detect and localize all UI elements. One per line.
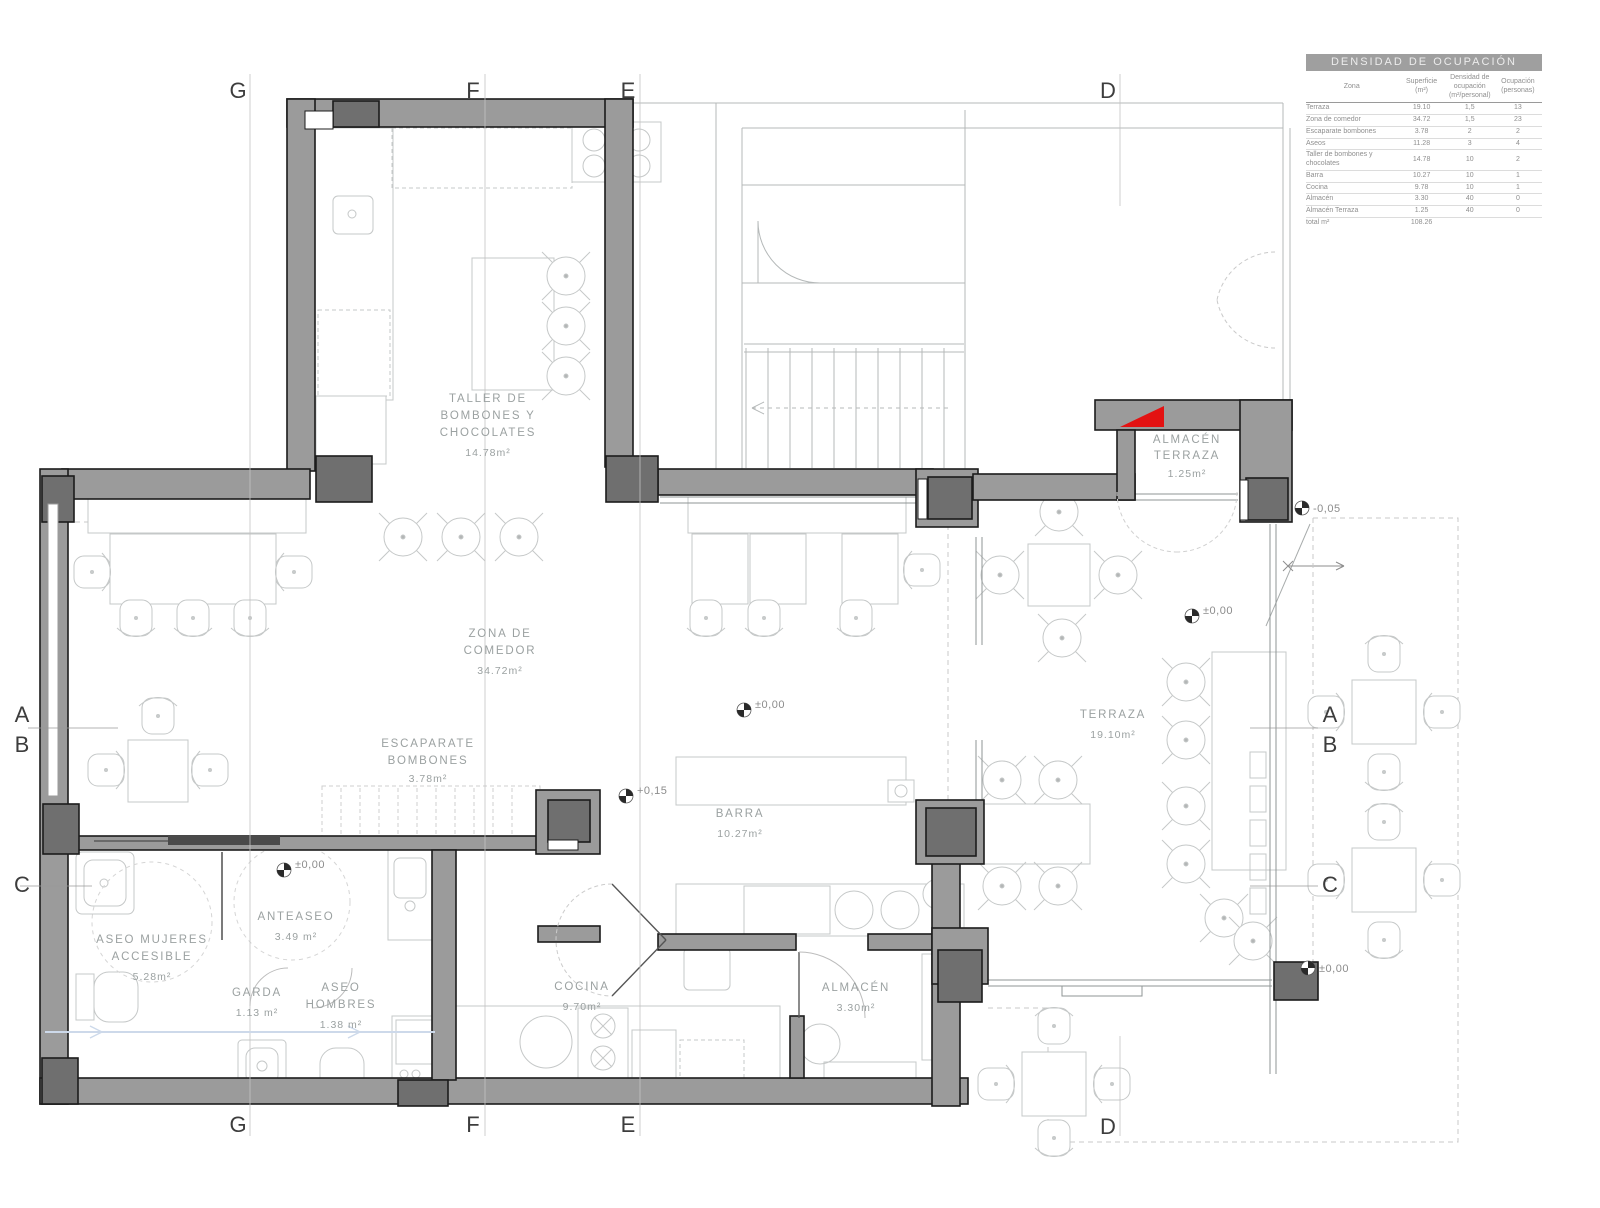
grid-letter-c-left: C [14,872,30,897]
occupancy-cell: 1 [1494,182,1542,194]
svg-text:3.30m²: 3.30m² [837,1002,876,1014]
furniture [74,122,1460,1157]
svg-text:TERRAZA: TERRAZA [1154,450,1220,462]
svg-text:14.78m²: 14.78m² [465,447,511,459]
occupancy-cell: Barra [1306,170,1398,182]
svg-text:10.27m²: 10.27m² [717,828,763,840]
occupancy-cell: Taller de bombones y chocolates [1306,150,1398,171]
svg-text:BARRA: BARRA [716,808,765,820]
svg-text:34.72m²: 34.72m² [477,665,523,677]
room-label-terraza: TERRAZA 19.10m² [1080,709,1146,741]
room-label-taller: TALLER DE BOMBONES Y CHOCOLATES 14.78m² [440,393,536,459]
occupancy-row: Zona de comedor34.721,523 [1306,115,1542,127]
occupancy-cell: 13 [1494,103,1542,115]
room-label-garda: GARDA 1.13 m² [232,987,282,1019]
svg-text:TALLER DE: TALLER DE [449,393,527,405]
svg-text:3.49 m²: 3.49 m² [275,931,318,943]
svg-text:COCINA: COCINA [554,981,610,993]
room-label-anteaseo: ANTEASEO 3.49 m² [257,911,334,943]
grid-letter-c-right: C [1322,872,1338,897]
occupancy-cell: Escaparate bombones [1306,126,1398,138]
occupancy-cell: 10 [1446,182,1494,194]
occupancy-cell: 3.78 [1398,126,1446,138]
terraza-furniture [976,488,1286,965]
occupancy-row: Cocina9.78101 [1306,182,1542,194]
bathroom-fixtures [76,844,438,1098]
occupancy-cell: Almacén [1306,194,1398,206]
occupancy-row: Almacén3.30400 [1306,194,1542,206]
svg-text:ALMACÉN: ALMACÉN [1153,433,1221,446]
room-label-barra: BARRA 10.27m² [716,808,765,840]
level-aseos: ±0,00 [295,859,325,871]
grid-letter-b-left: B [15,732,30,757]
occupancy-cell: 10 [1446,170,1494,182]
almacen-furniture [800,954,952,1078]
occupancy-cell: 19.10 [1398,103,1446,115]
occupancy-cell: 1 [1494,170,1542,182]
occupancy-total-superficie: 108.26 [1398,217,1446,228]
occupancy-cell: Terraza [1306,103,1398,115]
annotation-guideline [45,1026,435,1038]
grid-letter-f-top: F [466,78,479,103]
svg-text:5.28m²: 5.28m² [133,971,172,983]
svg-text:9.70m²: 9.70m² [563,1001,602,1013]
occupancy-row: Terraza19.101,513 [1306,103,1542,115]
occupancy-row: Escaparate bombones3.7822 [1306,126,1542,138]
occupancy-cell: Almacén Terraza [1306,206,1398,218]
svg-text:ZONA DE: ZONA DE [468,628,531,640]
occupancy-table: DENSIDAD DE OCUPACIÓN Zona Superficie (m… [1306,54,1542,229]
svg-text:ASEO: ASEO [321,982,360,994]
occupancy-row: Almacén Terraza1.25400 [1306,206,1542,218]
svg-text:CHOCOLATES: CHOCOLATES [440,427,536,439]
occupancy-cell: 34.72 [1398,115,1446,127]
level-terraza: ±0,00 [1203,605,1233,617]
occupancy-row: Taller de bombones y chocolates14.78102 [1306,150,1542,171]
occupancy-cell: 0 [1494,194,1542,206]
grid-lines [20,74,1318,1136]
occupancy-header-densidad: Densidad de ocupación (m²/personal) [1446,73,1494,103]
occupancy-cell: 11.28 [1398,138,1446,150]
occupancy-total-label: total m² [1306,217,1398,228]
escaparate-display [322,786,540,836]
occupancy-cell: 2 [1494,150,1542,171]
occupancy-total-row: total m² 108.26 [1306,217,1542,228]
level-comedor: ±0,00 [755,699,785,711]
occupancy-cell: 1,5 [1446,115,1494,127]
grid-letter-b-right: B [1323,732,1338,757]
level-exterior-se: ±0,00 [1319,963,1349,975]
svg-text:1.38 m²: 1.38 m² [320,1019,363,1031]
occupancy-cell: 2 [1446,126,1494,138]
svg-text:TERRAZA: TERRAZA [1080,709,1146,721]
occupancy-cell: 9.78 [1398,182,1446,194]
occupancy-header-ocupacion: Ocupación (personas) [1494,73,1542,103]
svg-text:3.78m²: 3.78m² [409,773,448,785]
occupancy-cell: Zona de comedor [1306,115,1398,127]
occupancy-header-superficie: Superficie (m²) [1398,73,1446,103]
svg-text:HOMBRES: HOMBRES [306,999,377,1011]
grid-letter-g-top: G [229,78,246,103]
floor-plan-page: G F E D G F E D A B C A B C ±0,00 +0,15 … [0,0,1600,1208]
svg-text:19.10m²: 19.10m² [1090,729,1136,741]
occupancy-cell: 2 [1494,126,1542,138]
grid-letter-e-bottom: E [621,1112,636,1137]
svg-text:ACCESIBLE: ACCESIBLE [112,951,193,963]
occupancy-cell: 3.30 [1398,194,1446,206]
room-label-escaparate: ESCAPARATE BOMBONES 3.78m² [381,738,475,785]
svg-text:GARDA: GARDA [232,987,282,999]
room-label-almacen-terraza: ALMACÉN TERRAZA 1.25m² [1153,433,1221,480]
svg-text:ANTEASEO: ANTEASEO [257,911,334,923]
level-exterior-ne: -0,05 [1313,503,1341,515]
occupancy-cell: 0 [1494,206,1542,218]
svg-text:1.25m²: 1.25m² [1168,468,1207,480]
occupancy-table-title: DENSIDAD DE OCUPACIÓN [1306,54,1542,71]
occupancy-cell: Aseos [1306,138,1398,150]
room-label-almacen: ALMACÉN 3.30m² [822,981,890,1014]
occupancy-cell: 3 [1446,138,1494,150]
occupancy-row: Barra10.27101 [1306,170,1542,182]
occupancy-cell: 10.27 [1398,170,1446,182]
cocina-furniture [456,948,780,1078]
occupancy-header-row: Zona Superficie (m²) Densidad de ocupaci… [1306,73,1542,103]
grid-letter-a-left: A [15,702,30,727]
svg-text:COMEDOR: COMEDOR [464,645,537,657]
svg-text:BOMBONES Y: BOMBONES Y [440,410,535,422]
occupancy-cell: Cocina [1306,182,1398,194]
grid-letter-g-bottom: G [229,1112,246,1137]
occupancy-cell: 10 [1446,150,1494,171]
grid-letter-a-right: A [1323,702,1338,727]
room-label-aseo-hombres: ASEO HOMBRES 1.38 m² [306,982,377,1031]
occupancy-cell: 1.25 [1398,206,1446,218]
level-barra: +0,15 [637,785,667,797]
grid-letter-f-bottom: F [466,1112,479,1137]
grid-letter-d-bottom: D [1100,1114,1116,1139]
occupancy-cell: 40 [1446,206,1494,218]
occupancy-cell: 4 [1494,138,1542,150]
occupancy-cell: 14.78 [1398,150,1446,171]
svg-text:1.13 m²: 1.13 m² [236,1007,279,1019]
grid-letter-e-top: E [621,78,636,103]
svg-text:ASEO MUJERES: ASEO MUJERES [96,934,208,946]
grid-letter-d-top: D [1100,78,1116,103]
occupancy-cell: 23 [1494,115,1542,127]
room-label-zona-comedor: ZONA DE COMEDOR 34.72m² [464,628,537,677]
occupancy-header-zona: Zona [1306,73,1398,103]
occupancy-cell: 1,5 [1446,103,1494,115]
occupancy-row: Aseos11.2834 [1306,138,1542,150]
svg-text:BOMBONES: BOMBONES [388,755,469,767]
occupancy-cell: 40 [1446,194,1494,206]
svg-text:ALMACÉN: ALMACÉN [822,981,890,994]
svg-text:ESCAPARATE: ESCAPARATE [381,738,475,750]
